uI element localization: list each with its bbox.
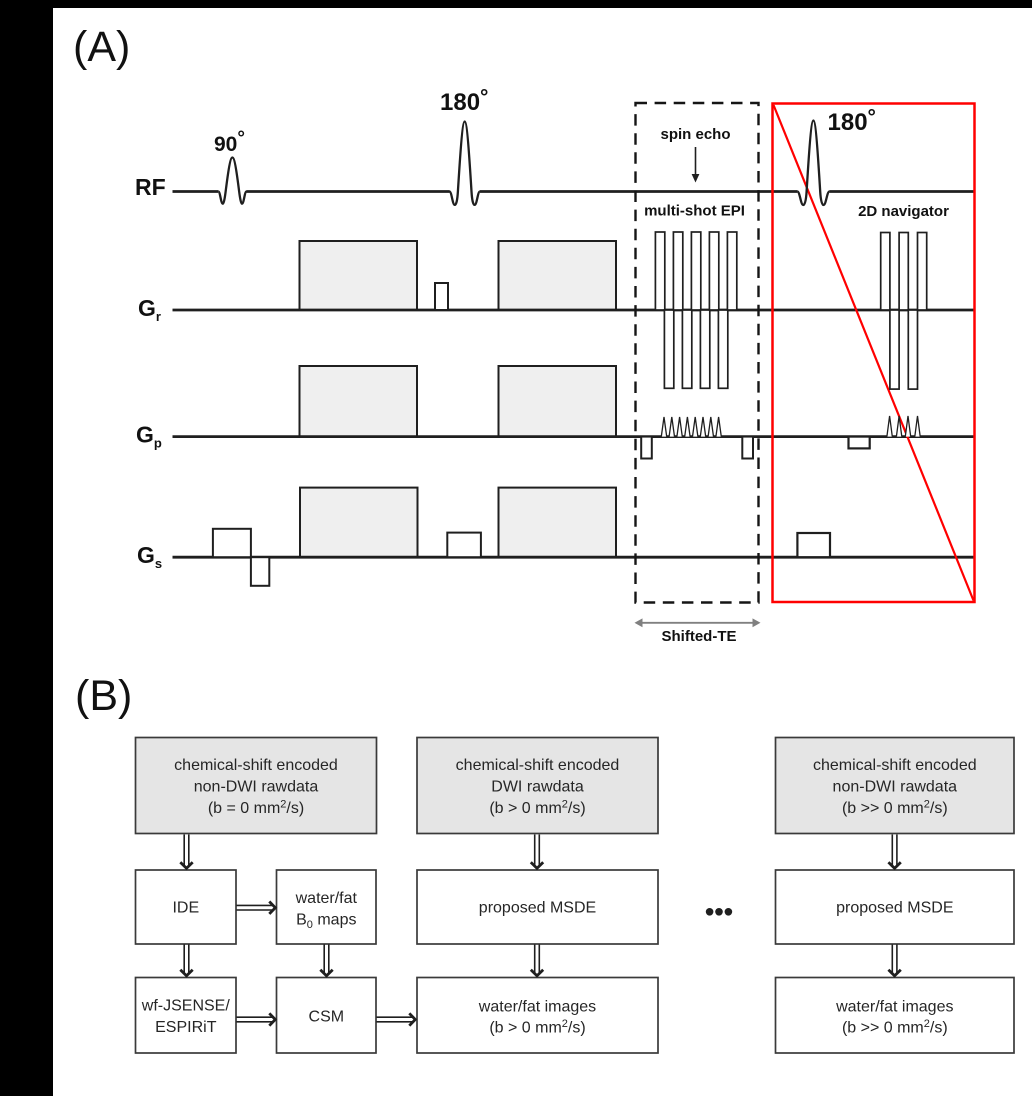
svg-text:chemical-shift encoded: chemical-shift encoded	[813, 757, 977, 774]
svg-text:spin echo: spin echo	[660, 126, 730, 143]
svg-text:water/fat: water/fat	[295, 890, 358, 907]
svg-text:2D navigator: 2D navigator	[858, 203, 949, 220]
svg-text:(b = 0 mm2/s): (b = 0 mm2/s)	[208, 798, 304, 817]
svg-text:chemical-shift encoded: chemical-shift encoded	[456, 757, 620, 774]
svg-text:(B): (B)	[75, 672, 132, 720]
svg-text:Shifted-TE: Shifted-TE	[662, 628, 737, 645]
svg-text:(b > 0 mm2/s): (b > 0 mm2/s)	[489, 1018, 585, 1037]
svg-text:water/fat images: water/fat images	[478, 998, 596, 1015]
svg-text:DWI rawdata: DWI rawdata	[491, 778, 584, 795]
svg-text:CSM: CSM	[309, 1008, 345, 1025]
svg-text:B0 maps: B0 maps	[296, 911, 356, 931]
svg-text:non-DWI rawdata: non-DWI rawdata	[833, 778, 958, 795]
svg-text:proposed MSDE: proposed MSDE	[836, 899, 953, 916]
svg-text:water/fat images: water/fat images	[835, 998, 953, 1015]
svg-text:(b >> 0 mm2/s): (b >> 0 mm2/s)	[842, 1018, 948, 1037]
svg-text:proposed MSDE: proposed MSDE	[479, 899, 596, 916]
svg-text:non-DWI rawdata: non-DWI rawdata	[194, 778, 319, 795]
svg-text:wf-JSENSE/: wf-JSENSE/	[141, 997, 231, 1014]
svg-text:(b > 0 mm2/s): (b > 0 mm2/s)	[489, 798, 585, 817]
svg-text:(A): (A)	[73, 23, 130, 71]
svg-text:IDE: IDE	[172, 899, 199, 916]
svg-text:(b >> 0 mm2/s): (b >> 0 mm2/s)	[842, 798, 948, 817]
svg-text:RF: RF	[135, 174, 166, 200]
svg-text:chemical-shift encoded: chemical-shift encoded	[174, 757, 338, 774]
svg-text:multi-shot EPI: multi-shot EPI	[644, 203, 745, 220]
svg-text:ESPIRiT: ESPIRiT	[155, 1019, 217, 1036]
